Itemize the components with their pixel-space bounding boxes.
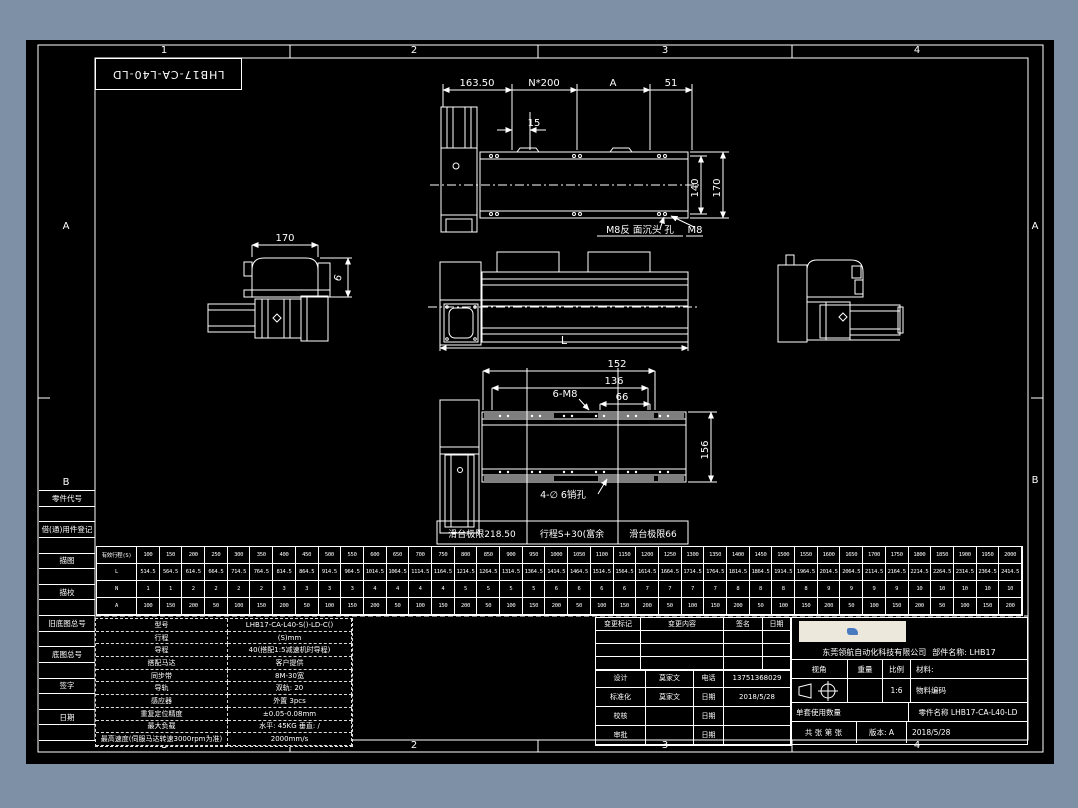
- cell: 莫家文: [646, 669, 694, 688]
- cell: 150: [977, 598, 1000, 615]
- cell: 150: [160, 598, 183, 615]
- zone-col-1: 1: [154, 45, 174, 56]
- cell: 日期: [694, 707, 724, 726]
- cell: 1200: [636, 547, 659, 564]
- cell: 1400: [727, 547, 750, 564]
- cell: 日期: [39, 710, 95, 726]
- cell: 4: [409, 581, 432, 598]
- cell: 水平: 45KG 垂直: /: [228, 721, 352, 734]
- cell: 型号: [96, 619, 228, 632]
- cell: 150: [614, 598, 637, 615]
- cell: 150: [250, 598, 273, 615]
- cell: 50: [296, 598, 319, 615]
- cell: [39, 569, 95, 585]
- cell: 2314.5: [954, 564, 977, 581]
- cell: 1564.5: [614, 564, 637, 581]
- cell: 650: [387, 547, 410, 564]
- cell: 旧底图总号: [39, 616, 95, 632]
- cell: 3: [341, 581, 364, 598]
- cell: 714.5: [228, 564, 251, 581]
- cell: 1364.5: [523, 564, 546, 581]
- cell: 日期: [694, 726, 724, 745]
- corner-part-number-box: LHB17-CA-L40-LD: [95, 58, 242, 90]
- cell: 700: [409, 547, 432, 564]
- cell: 双轨: 20: [228, 682, 352, 695]
- cell: 变更内容: [641, 618, 724, 631]
- assembly-name: 部件名称: LHB17: [932, 647, 995, 658]
- right-end-view: [778, 255, 903, 342]
- cell: 7: [636, 581, 659, 598]
- cell: 9: [863, 581, 886, 598]
- cell: 200: [273, 598, 296, 615]
- cell: 1700: [863, 547, 886, 564]
- zone-row-b-left: B: [56, 477, 76, 488]
- cell: 1900: [954, 547, 977, 564]
- cell: 1650: [840, 547, 863, 564]
- cell: 200: [999, 598, 1022, 615]
- cell: 100: [500, 598, 523, 615]
- cell: 2364.5: [977, 564, 1000, 581]
- cell: 电话: [694, 669, 724, 688]
- cell: 最大负载: [96, 721, 228, 734]
- cell: 2000: [999, 547, 1022, 564]
- cell: 审批: [596, 726, 646, 745]
- cell: 750: [432, 547, 455, 564]
- dim-6: 6: [332, 273, 345, 283]
- cell: [39, 600, 95, 616]
- cell: 814.5: [273, 564, 296, 581]
- cell: 1764.5: [704, 564, 727, 581]
- cell: 100: [409, 598, 432, 615]
- cell: 1600: [818, 547, 841, 564]
- cell: 864.5: [296, 564, 319, 581]
- cell: 914.5: [319, 564, 342, 581]
- cell: L: [97, 564, 137, 581]
- dim-136: 136: [604, 376, 623, 387]
- cell: [763, 644, 791, 657]
- cell: 664.5: [205, 564, 228, 581]
- cell: 1950: [977, 547, 1000, 564]
- cell: 9: [840, 581, 863, 598]
- cell: 客户提供: [228, 657, 352, 670]
- cell: 50: [387, 598, 410, 615]
- cell: 200: [909, 598, 932, 615]
- cell: 50: [477, 598, 500, 615]
- cell: 1: [137, 581, 160, 598]
- cell: 2: [182, 581, 205, 598]
- cell: 2414.5: [999, 564, 1022, 581]
- projection-symbol: [791, 679, 848, 702]
- cell: 签名: [724, 618, 763, 631]
- note-stroke: 行程S+30(富余: [540, 528, 604, 540]
- cell: 100: [228, 598, 251, 615]
- cell: 1914.5: [772, 564, 795, 581]
- cell: 8: [772, 581, 795, 598]
- zone-col-4: 4: [907, 45, 927, 56]
- cell: 400: [273, 547, 296, 564]
- cell: 150: [886, 598, 909, 615]
- title-block: 东莞领航自动化科技有限公司 部件名称: LHB17 视角 重量 比例 材料: 1…: [790, 617, 1028, 745]
- cell: 2264.5: [931, 564, 954, 581]
- cell: 900: [500, 547, 523, 564]
- cell: 2: [205, 581, 228, 598]
- cell: 2: [250, 581, 273, 598]
- zone-col-2-bottom: 2: [404, 740, 424, 751]
- cell: 5: [455, 581, 478, 598]
- cell: 7: [704, 581, 727, 598]
- cell: 导程: [96, 644, 228, 657]
- cell: 日期: [763, 618, 791, 631]
- cell: 校核: [596, 707, 646, 726]
- cell: 1050: [568, 547, 591, 564]
- cell: 150: [795, 598, 818, 615]
- cell: 50: [840, 598, 863, 615]
- cell: 6: [545, 581, 568, 598]
- cell: ±0.05-0.08mm: [228, 708, 352, 721]
- cell: 5: [477, 581, 500, 598]
- cell: 4: [387, 581, 410, 598]
- label-6m8: 6-M8: [553, 389, 578, 400]
- cell: LHB17-CA-L40-S()-LD-C(): [228, 619, 352, 632]
- cell: 重复定位精度: [96, 708, 228, 721]
- cell: 2214.5: [909, 564, 932, 581]
- cell: [641, 631, 724, 644]
- cell: 2014.5: [818, 564, 841, 581]
- cell: 2064.5: [840, 564, 863, 581]
- cell: 200: [455, 598, 478, 615]
- cell: 莫家文: [646, 688, 694, 707]
- cell: 描图: [39, 554, 95, 570]
- zone-col-2: 2: [404, 45, 424, 56]
- cell: 13751368029: [724, 669, 791, 688]
- sheet-count: 共 张 第 张: [791, 722, 857, 743]
- cell: 200: [545, 598, 568, 615]
- cell: 950: [523, 547, 546, 564]
- dim-l: L: [561, 334, 568, 347]
- cell: 450: [296, 547, 319, 564]
- cell: 行程: [96, 632, 228, 645]
- version: 版本: A: [857, 722, 907, 743]
- cell: 外置 3pcs: [228, 695, 352, 708]
- cell: 850: [477, 547, 500, 564]
- cell: 764.5: [250, 564, 273, 581]
- cell: 4: [364, 581, 387, 598]
- dim-140: 140: [690, 178, 701, 197]
- weight-label: 重量: [848, 660, 883, 678]
- cell: 1014.5: [364, 564, 387, 581]
- cell: 10: [954, 581, 977, 598]
- cell: 7: [659, 581, 682, 598]
- cell: 3: [296, 581, 319, 598]
- label-pin-holes: 4-∅ 6销孔: [540, 489, 586, 501]
- change-table-upper: 变更标记变更内容签名日期: [595, 617, 792, 671]
- left-end-view: [208, 245, 352, 341]
- company-row: 东莞领航自动化科技有限公司 部件名称: LHB17: [791, 645, 1027, 660]
- cell: 1814.5: [727, 564, 750, 581]
- cell: [39, 725, 95, 741]
- weight-value: [848, 679, 883, 702]
- cell: 签字: [39, 679, 95, 695]
- cell: 10: [909, 581, 932, 598]
- cell: 6: [591, 581, 614, 598]
- cell: 8: [750, 581, 773, 598]
- cell: [724, 726, 791, 745]
- cell: 4: [432, 581, 455, 598]
- cell: 250: [205, 547, 228, 564]
- company-logo: [799, 621, 906, 642]
- cell: 200: [636, 598, 659, 615]
- cell: 10: [999, 581, 1022, 598]
- part-name: 零件名称 LHB17-CA-L40-LD: [909, 703, 1027, 721]
- cell: 2: [228, 581, 251, 598]
- cell: 6: [568, 581, 591, 598]
- cell: A: [97, 598, 137, 615]
- cell: 1114.5: [409, 564, 432, 581]
- cell: [724, 644, 763, 657]
- cell: 日期: [694, 688, 724, 707]
- cell: [724, 707, 791, 726]
- cell: 描校: [39, 585, 95, 601]
- cell: 1350: [704, 547, 727, 564]
- cell: 1214.5: [455, 564, 478, 581]
- left-fields: 零件代号借(通)用件登记描图描校旧底图总号底图总号签字日期: [39, 490, 95, 741]
- cell: 200: [182, 547, 205, 564]
- cell: 设计: [596, 669, 646, 688]
- cell: 1714.5: [682, 564, 705, 581]
- label-counterbore: M8反 面沉头 孔: [606, 224, 674, 236]
- cell: 1464.5: [568, 564, 591, 581]
- material-label: 材料:: [911, 660, 1027, 678]
- cell: 1250: [659, 547, 682, 564]
- corner-part-number: LHB17-CA-L40-LD: [112, 68, 225, 81]
- note-limit-right: 滑台极限66: [629, 528, 677, 540]
- scale-label: 比例: [883, 660, 911, 678]
- cell: 变更标记: [596, 618, 641, 631]
- cell: 1264.5: [477, 564, 500, 581]
- cell: 3: [319, 581, 342, 598]
- cell: [39, 694, 95, 710]
- cell: [763, 631, 791, 644]
- cell: 550: [341, 547, 364, 564]
- cell: 964.5: [341, 564, 364, 581]
- cell: 200: [818, 598, 841, 615]
- cell: 8M-30宽: [228, 670, 352, 683]
- cad-viewport: 163.50 N*200 A 51 15 140 170 M8反 面沉头 孔 M…: [0, 0, 1078, 808]
- cell: (S)mm: [228, 632, 352, 645]
- dim-51: 51: [665, 78, 678, 89]
- cell: 350: [250, 547, 273, 564]
- cell: 2114.5: [863, 564, 886, 581]
- cell: [646, 726, 694, 745]
- cell: 1150: [614, 547, 637, 564]
- view-angle-label: 视角: [791, 660, 848, 678]
- cell: 200: [364, 598, 387, 615]
- cell: 借(通)用件登记: [39, 522, 95, 538]
- cell: 5: [500, 581, 523, 598]
- company-name: 东莞领航自动化科技有限公司: [822, 647, 926, 658]
- cell: 1300: [682, 547, 705, 564]
- cell: 50: [931, 598, 954, 615]
- cell: 100: [682, 598, 705, 615]
- cell: 搭配马达: [96, 657, 228, 670]
- cell: 8: [727, 581, 750, 598]
- cell: 1064.5: [387, 564, 410, 581]
- title-date: 2018/5/28: [907, 722, 1027, 743]
- dim-n200: N*200: [528, 78, 560, 89]
- cell: 1164.5: [432, 564, 455, 581]
- cell: 40(搭配1:5减速机时导程): [228, 644, 352, 657]
- logo-row: [791, 618, 1027, 645]
- cell: N: [97, 581, 137, 598]
- cell: 8: [795, 581, 818, 598]
- cell: 50: [750, 598, 773, 615]
- cell: 50: [205, 598, 228, 615]
- cell: 150: [341, 598, 364, 615]
- cell: 1614.5: [636, 564, 659, 581]
- dim-a: A: [610, 78, 617, 89]
- cell: 2164.5: [886, 564, 909, 581]
- cell: 100: [137, 598, 160, 615]
- cell: 1500: [772, 547, 795, 564]
- cell: 100: [591, 598, 614, 615]
- dim-156: 156: [700, 440, 711, 459]
- cell: 10: [931, 581, 954, 598]
- cell: 最高速度(伺服马达转速3000rpm为准): [96, 733, 228, 746]
- cell: 200: [182, 598, 205, 615]
- cell: 零件代号: [39, 491, 95, 507]
- dim-15: 15: [528, 118, 541, 129]
- cell: 50: [659, 598, 682, 615]
- zone-col-3: 3: [655, 45, 675, 56]
- cell: [646, 707, 694, 726]
- cell: 150: [704, 598, 727, 615]
- cell: 1550: [795, 547, 818, 564]
- cell: 有效行程(S): [97, 547, 137, 564]
- cell: 150: [160, 547, 183, 564]
- cell: 800: [455, 547, 478, 564]
- dim-170-left-view: 170: [275, 233, 294, 244]
- cell: 1850: [931, 547, 954, 564]
- cell: 600: [364, 547, 387, 564]
- cell: 9: [886, 581, 909, 598]
- cell: [39, 663, 95, 679]
- cell: 100: [772, 598, 795, 615]
- cell: [596, 644, 641, 657]
- cell: 5: [523, 581, 546, 598]
- cell: 10: [977, 581, 1000, 598]
- cell: 1514.5: [591, 564, 614, 581]
- cell: 1100: [591, 547, 614, 564]
- cell: 2018/5/28: [724, 688, 791, 707]
- cell: 300: [228, 547, 251, 564]
- cell: [641, 644, 724, 657]
- stroke-table: 有效行程(S)100150200250300350400450500550600…: [96, 546, 1023, 616]
- top-view: [430, 84, 729, 236]
- cell: 1314.5: [500, 564, 523, 581]
- cell: 200: [727, 598, 750, 615]
- note-limit-left: 滑台极限218.50: [448, 528, 516, 540]
- label-m8: M8: [688, 225, 703, 236]
- change-table-lower: 设计莫家文电话13751368029标准化莫家文日期2018/5/28校核日期审…: [595, 669, 792, 746]
- qty-per-set-label: 单套使用数量: [791, 703, 909, 721]
- cell: 514.5: [137, 564, 160, 581]
- cell: 9: [818, 581, 841, 598]
- cell: 564.5: [160, 564, 183, 581]
- cell: 1664.5: [659, 564, 682, 581]
- cell: [39, 632, 95, 648]
- cell: 1864.5: [750, 564, 773, 581]
- cell: [39, 538, 95, 554]
- cell: 100: [954, 598, 977, 615]
- zone-row-b-right: B: [1025, 475, 1045, 486]
- cell: 500: [319, 547, 342, 564]
- first-angle-projection-icon: [795, 681, 843, 701]
- cell: 50: [568, 598, 591, 615]
- dim-152: 152: [607, 359, 626, 370]
- cell: 同步带: [96, 670, 228, 683]
- cell: [596, 631, 641, 644]
- cell: 导轨: [96, 682, 228, 695]
- cell: 150: [523, 598, 546, 615]
- cell: 100: [863, 598, 886, 615]
- cell: 100: [137, 547, 160, 564]
- material-code-label: 物料编码: [911, 679, 1027, 702]
- spec-table: 型号LHB17-CA-L40-S()-LD-C()行程(S)mm导程40(搭配1…: [95, 618, 353, 747]
- cell: 1450: [750, 547, 773, 564]
- cell: 3: [273, 581, 296, 598]
- zone-row-a-left: A: [56, 221, 76, 232]
- cell: 标准化: [596, 688, 646, 707]
- cell: 1000: [545, 547, 568, 564]
- cell: 1800: [909, 547, 932, 564]
- logo-icon: [847, 628, 858, 635]
- cell: 6: [614, 581, 637, 598]
- cell: 1414.5: [545, 564, 568, 581]
- scale-value: 1:6: [883, 679, 911, 702]
- cell: 1: [160, 581, 183, 598]
- cell: [39, 507, 95, 523]
- cell: 1750: [886, 547, 909, 564]
- cell: 感应器: [96, 695, 228, 708]
- zone-row-a-right: A: [1025, 221, 1045, 232]
- cell: 150: [432, 598, 455, 615]
- cell: 7: [682, 581, 705, 598]
- cell: 614.5: [182, 564, 205, 581]
- cell: 100: [319, 598, 342, 615]
- cell: 底图总号: [39, 647, 95, 663]
- cell: [724, 631, 763, 644]
- cell: 2000mm/s: [228, 733, 352, 746]
- dim-170-right: 170: [712, 178, 723, 197]
- dim-163-50: 163.50: [460, 78, 495, 89]
- cell: 1964.5: [795, 564, 818, 581]
- dim-66: 66: [616, 392, 629, 403]
